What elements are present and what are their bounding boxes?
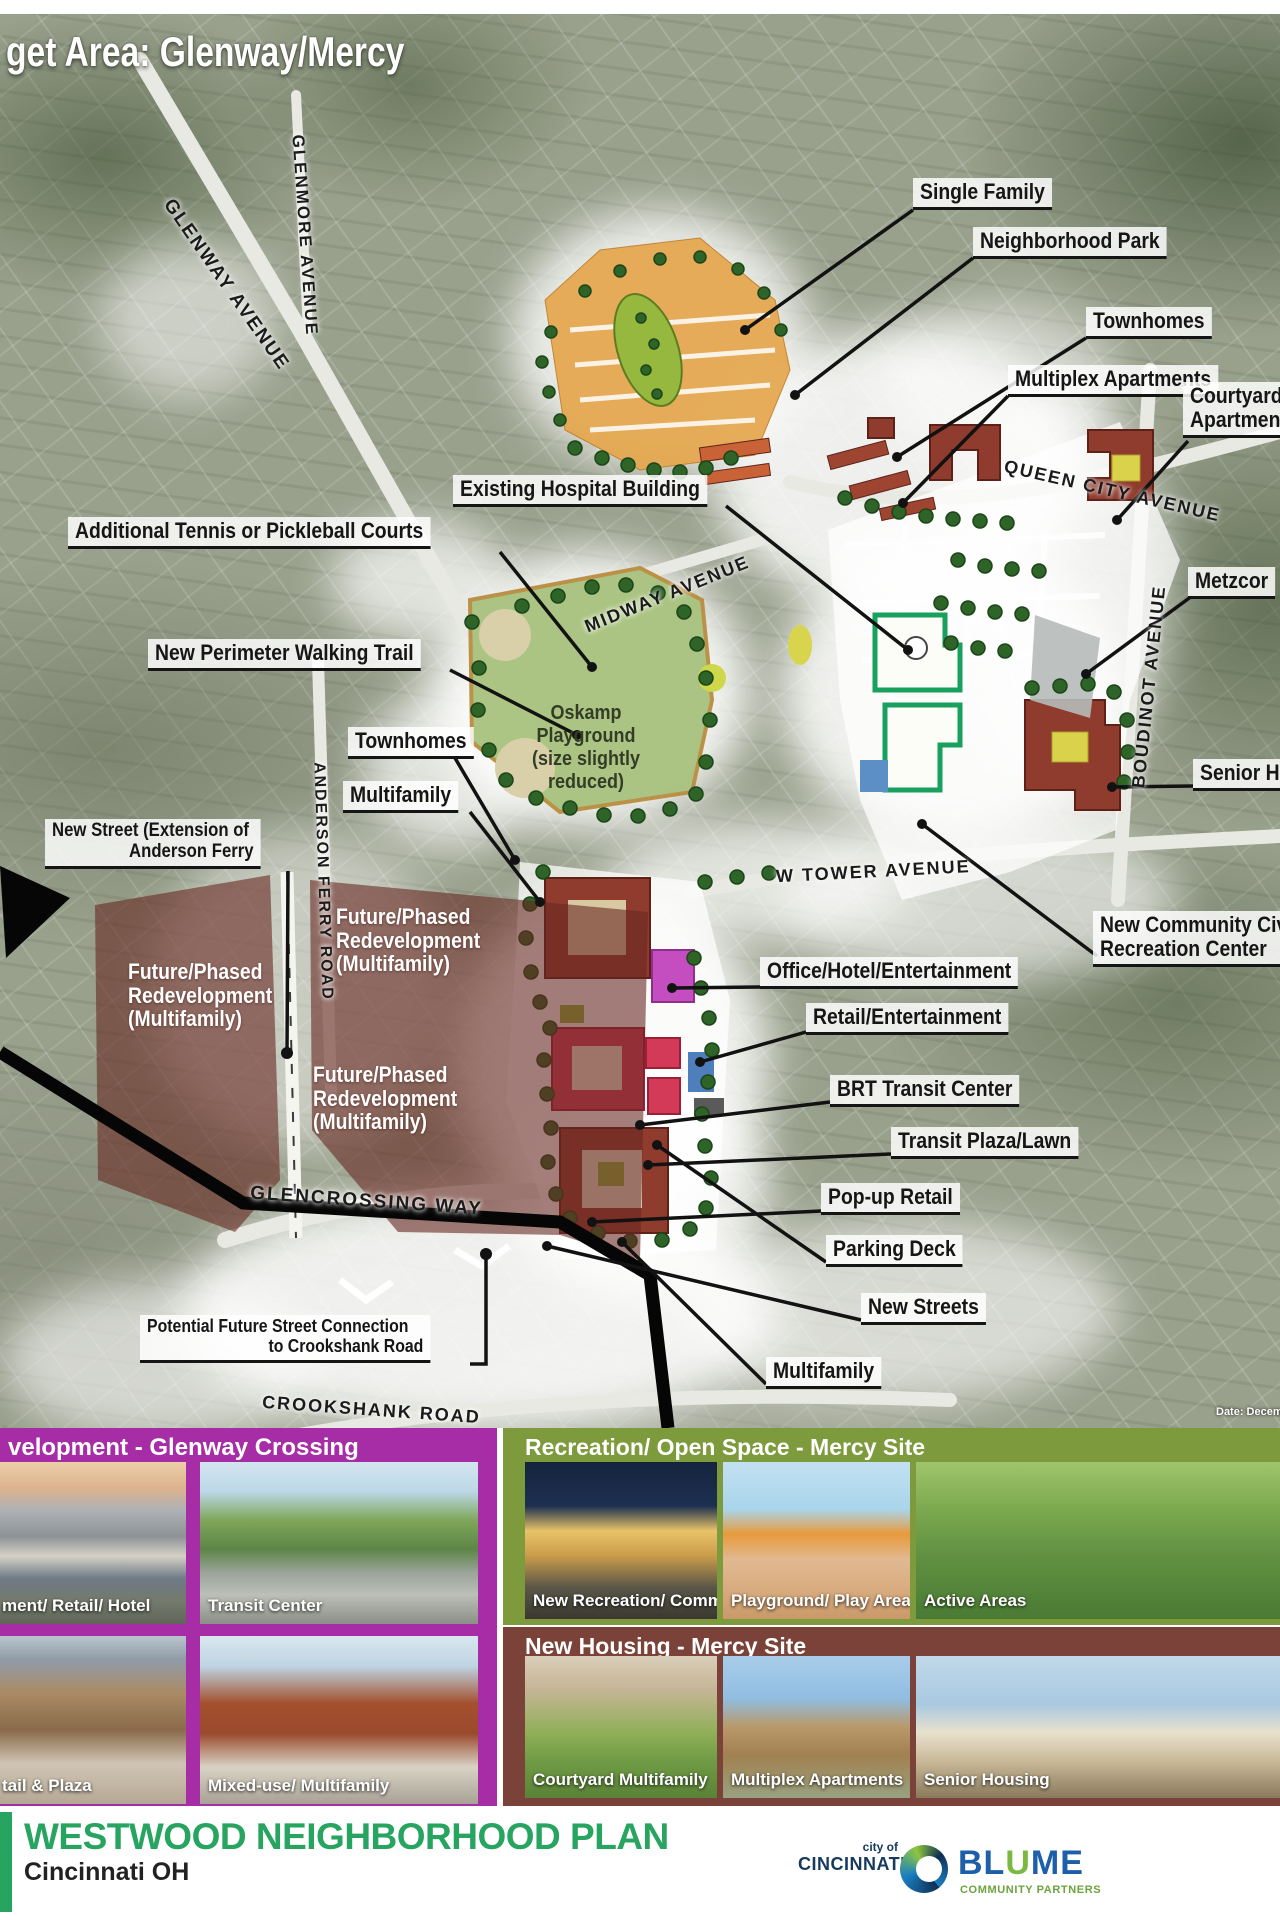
oskamp-line2: (size slightly reduced)	[505, 748, 667, 794]
photo-entertainment-retail-hotel: ment/ Retail/ Hotel	[0, 1462, 186, 1624]
photo-courtyard-multifamily: Courtyard Multifamily	[525, 1656, 717, 1798]
photo-caption: Transit Center	[208, 1596, 322, 1616]
future-line: (Multifamily)	[128, 1007, 272, 1031]
photo-playground-play-areas: Playground/ Play Areas	[723, 1462, 910, 1619]
callout-community-rec-center: New Community Civ Recreation Center	[1093, 911, 1280, 967]
photo-caption: tail & Plaza	[2, 1776, 92, 1796]
callout-line: Recreation Center	[1100, 937, 1280, 961]
photo-caption: ment/ Retail/ Hotel	[2, 1596, 150, 1616]
photo-senior-housing: Senior Housing	[916, 1656, 1280, 1798]
cincinnati-logo-icon	[900, 1845, 948, 1893]
future-redevelopment-label-2: Future/Phased Redevelopment (Multifamily…	[128, 960, 272, 1031]
blume-logo-subtitle: COMMUNITY PARTNERS	[960, 1884, 1101, 1896]
panel-header-glenway-crossing: velopment - Glenway Crossing	[8, 1434, 359, 1462]
callout-line: Anderson Ferry	[52, 842, 254, 863]
footer-accent-bar	[0, 1812, 12, 1912]
photo-caption: Senior Housing	[924, 1770, 1050, 1790]
future-line: (Multifamily)	[336, 952, 480, 976]
footer-plan-subtitle: Cincinnati OH	[24, 1858, 189, 1887]
callout-new-street: New Street (Extension of Anderson Ferry	[45, 819, 261, 869]
callout-popup-retail: Pop-up Retail	[821, 1183, 960, 1215]
future-redevelopment-label-3: Future/Phased Redevelopment (Multifamily…	[313, 1063, 457, 1134]
callout-line: Potential Future Street Connection	[147, 1317, 423, 1337]
callout-line: Apartments/ M	[1190, 408, 1280, 432]
callout-brt-transit-center: BRT Transit Center	[830, 1075, 1019, 1107]
callout-tennis-pickleball: Additional Tennis or Pickleball Courts	[68, 517, 430, 549]
panel-header-recreation: Recreation/ Open Space - Mercy Site	[525, 1434, 925, 1461]
callout-multifamily-south: Multifamily	[766, 1357, 881, 1389]
photo-caption: Active Areas	[924, 1591, 1026, 1611]
photo-caption: Playground/ Play Areas	[731, 1591, 910, 1611]
photo-active-areas: Active Areas	[916, 1462, 1280, 1619]
photo-caption: Courtyard Multifamily	[533, 1770, 708, 1790]
future-line: Future/Phased	[313, 1063, 457, 1087]
blume-logo-bl: BL	[958, 1844, 1005, 1882]
oskamp-playground-label: Oskamp Playground (size slightly reduced…	[505, 702, 667, 794]
callout-single-family: Single Family	[913, 178, 1052, 210]
callout-senior-housing: Senior Hou	[1193, 759, 1280, 791]
photo-caption: Mixed-use/ Multifamily	[208, 1776, 389, 1796]
cincinnati-logo-text: CINCINNATI	[798, 1854, 906, 1875]
callout-line: Courtyard Mult	[1190, 384, 1280, 408]
callout-future-street-connection: Potential Future Street Connection to Cr…	[140, 1315, 430, 1363]
photo-transit-center: Transit Center	[200, 1462, 478, 1624]
callout-metzcor: Metzcor	[1188, 567, 1275, 599]
photo-caption: Multiplex Apartments	[731, 1770, 903, 1790]
callout-line: to Crookshank Road	[147, 1337, 423, 1357]
callout-retail-entertainment: Retail/Entertainment	[806, 1003, 1008, 1035]
callout-townhomes-west: Townhomes	[348, 727, 474, 759]
callout-walking-trail: New Perimeter Walking Trail	[148, 639, 421, 671]
callout-office-hotel-entertainment: Office/Hotel/Entertainment	[760, 957, 1018, 989]
callout-new-streets: New Streets	[861, 1293, 986, 1325]
future-redevelopment-label-1: Future/Phased Redevelopment (Multifamily…	[336, 905, 480, 976]
future-line: Redevelopment	[336, 929, 480, 953]
callout-existing-hospital: Existing Hospital Building	[453, 475, 707, 507]
photo-caption: New Recreation/ Community Center	[533, 1591, 717, 1611]
callout-neighborhood-park: Neighborhood Park	[973, 227, 1167, 259]
callout-multifamily-west: Multifamily	[343, 781, 458, 813]
callout-line: New Community Civ	[1100, 913, 1280, 937]
future-line: Future/Phased	[128, 960, 272, 984]
callout-townhomes-north: Townhomes	[1086, 307, 1212, 339]
callout-parking-deck: Parking Deck	[826, 1235, 963, 1267]
callout-courtyard-apartments: Courtyard Mult Apartments/ M	[1183, 382, 1280, 438]
cincinnati-logo-cityof: city of	[798, 1840, 898, 1854]
oskamp-line1: Oskamp Playground	[505, 702, 667, 748]
photo-mixed-use-multifamily: Mixed-use/ Multifamily	[200, 1636, 478, 1804]
photo-new-recreation-center: New Recreation/ Community Center	[525, 1462, 717, 1619]
callout-transit-plaza: Transit Plaza/Lawn	[891, 1127, 1078, 1159]
future-line: (Multifamily)	[313, 1110, 457, 1134]
page-title: get Area: Glenway/Mercy	[6, 28, 404, 76]
plan-poster: get Area: Glenway/Mercy GLENWAY AVENUE G…	[0, 0, 1280, 1920]
blume-logo: BLUME	[958, 1844, 1084, 1883]
photo-multiplex-apartments: Multiplex Apartments	[723, 1656, 910, 1798]
future-line: Redevelopment	[128, 984, 272, 1008]
photo-retail-plaza: tail & Plaza	[0, 1636, 186, 1804]
future-line: Redevelopment	[313, 1087, 457, 1111]
pool-building	[860, 760, 888, 792]
blume-logo-me: ME	[1031, 1844, 1084, 1882]
footer-plan-title: WESTWOOD NEIGHBORHOOD PLAN	[24, 1816, 669, 1858]
callout-line: New Street (Extension of	[52, 821, 254, 842]
future-line: Future/Phased	[336, 905, 480, 929]
blume-logo-u-leaf-icon: U	[1005, 1844, 1031, 1882]
date-note: Date: Decem	[1216, 1406, 1280, 1418]
